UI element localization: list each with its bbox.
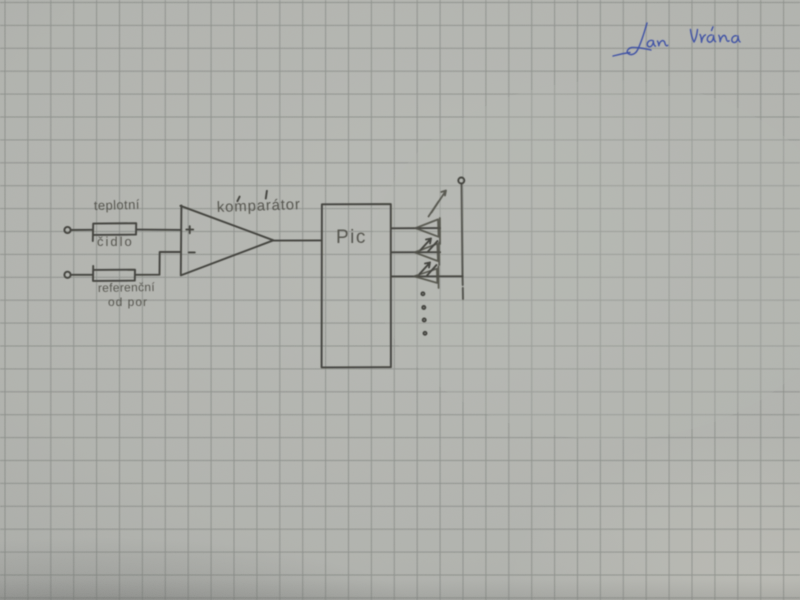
svg-text:Pic: Pic [336,227,367,248]
svg-text:od por: od por [108,295,148,309]
svg-text:teplotní: teplotní [94,197,140,213]
svg-text:referenční: referenční [98,280,156,295]
svg-text:čidlo: čidlo [97,234,134,249]
svg-text:komparátor: komparátor [217,196,301,216]
